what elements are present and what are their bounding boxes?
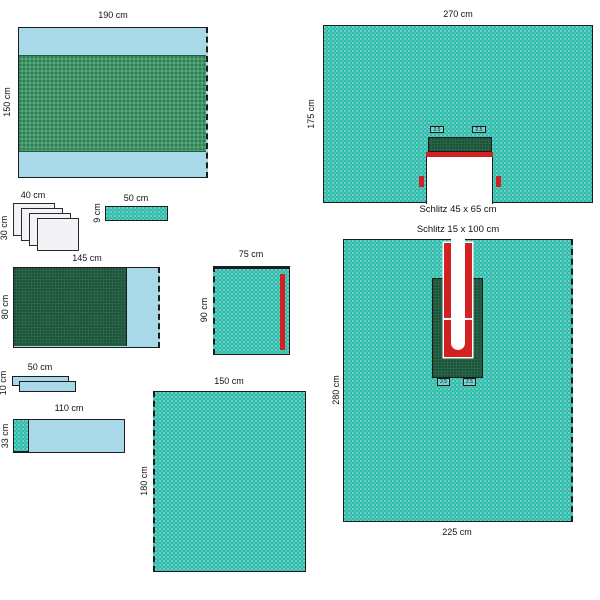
drape-225x280-tape-right-tag: 2.5 bbox=[463, 378, 476, 386]
drape-270x175-group: 270 cm 175 cm 2.5 2.5 Schlitz 45 x 65 cm bbox=[323, 25, 593, 203]
drape-270x175-side-tab-left bbox=[419, 176, 424, 187]
drape-225x280-tape-left-tag: 2.5 bbox=[437, 378, 450, 386]
strip-110x33-group: 110 cm 33 cm bbox=[13, 419, 125, 453]
drape-150x180-body bbox=[153, 391, 306, 572]
strip-stack-50x10-group: 50 cm 10 cm bbox=[12, 376, 82, 394]
drape-270x175-height-label: 175 cm bbox=[306, 99, 316, 129]
drape-225x280-slit-label: Schlitz 15 x 100 cm bbox=[417, 225, 499, 235]
strip-110x33-width-label: 110 cm bbox=[55, 403, 84, 413]
drape-225x280-height-label: 280 cm bbox=[331, 375, 341, 405]
drape-225x280-slit-cutout bbox=[451, 238, 465, 350]
drape-270x175-side-tab-right bbox=[496, 176, 501, 187]
drape-270x175-width-label: 270 cm bbox=[443, 9, 473, 19]
drape-225x280-body: 2.5 2.5 bbox=[343, 239, 573, 522]
drape-190x150-reinforcement-band bbox=[19, 55, 206, 152]
drape-270x175-tape-left-tag: 2.5 bbox=[430, 126, 444, 133]
drape-190x150-height-label: 150 cm bbox=[2, 87, 12, 117]
strip-50x9-group: 50 cm 9 cm bbox=[105, 206, 168, 221]
strip-50x9-height-label: 9 cm bbox=[92, 203, 102, 223]
strip-110x33-body bbox=[13, 419, 125, 453]
towel-sheet bbox=[37, 218, 79, 251]
drape-270x175-reinforcement-patch bbox=[428, 137, 492, 152]
strip-110x33-teal-end-patch bbox=[13, 419, 29, 452]
drape-270x175-tape-right-tag: 2.5 bbox=[472, 126, 486, 133]
drape-190x150-width-label: 190 cm bbox=[98, 10, 128, 20]
drape-set-diagram: 190 cm 150 cm 270 cm 175 cm 2.5 2.5 Schl… bbox=[0, 0, 600, 600]
drape-225x280-group: Schlitz 15 x 100 cm 280 cm 2.5 2.5 225 c… bbox=[343, 239, 573, 522]
strip-stack-height-label: 10 cm bbox=[0, 371, 8, 396]
drape-145x80-height-label: 80 cm bbox=[0, 295, 10, 320]
drape-75x90-width-label: 75 cm bbox=[239, 249, 264, 259]
drape-225x280-width-label: 225 cm bbox=[442, 527, 472, 537]
drape-145x80-reinforcement-zone bbox=[14, 268, 127, 346]
drape-190x150-body bbox=[18, 27, 208, 178]
strip-50x10 bbox=[19, 381, 76, 392]
drape-145x80-group: 145 cm 80 cm bbox=[13, 267, 160, 348]
drape-145x80-width-label: 145 cm bbox=[72, 253, 102, 263]
towel-stack-group: 40 cm 30 cm bbox=[13, 203, 83, 253]
strip-110x33-height-label: 33 cm bbox=[0, 424, 10, 449]
drape-270x175-slit-label: Schlitz 45 x 65 cm bbox=[419, 205, 496, 215]
drape-150x180-group: 150 cm 180 cm bbox=[153, 391, 306, 572]
drape-150x180-width-label: 150 cm bbox=[214, 376, 244, 386]
drape-75x90-tape-stripe bbox=[280, 274, 285, 350]
strip-stack-width-label: 50 cm bbox=[28, 362, 53, 372]
drape-75x90-body bbox=[213, 266, 290, 355]
drape-225x280-tape-bar-right bbox=[465, 243, 472, 318]
drape-75x90-height-label: 90 cm bbox=[199, 298, 209, 323]
strip-50x9-width-label: 50 cm bbox=[124, 193, 149, 203]
drape-225x280-tape-bar-left bbox=[444, 243, 451, 318]
drape-145x80-body bbox=[13, 267, 160, 348]
drape-270x175-body: 2.5 2.5 bbox=[323, 25, 593, 203]
drape-75x90-group: 75 cm 90 cm bbox=[213, 266, 290, 355]
towel-stack-height-label: 30 cm bbox=[0, 216, 9, 241]
drape-150x180-height-label: 180 cm bbox=[139, 466, 149, 496]
towel-stack-width-label: 40 cm bbox=[21, 190, 46, 200]
strip-50x9-body bbox=[105, 206, 168, 221]
drape-270x175-slit-cutout bbox=[426, 157, 493, 204]
drape-190x150-group: 190 cm 150 cm bbox=[18, 27, 208, 178]
